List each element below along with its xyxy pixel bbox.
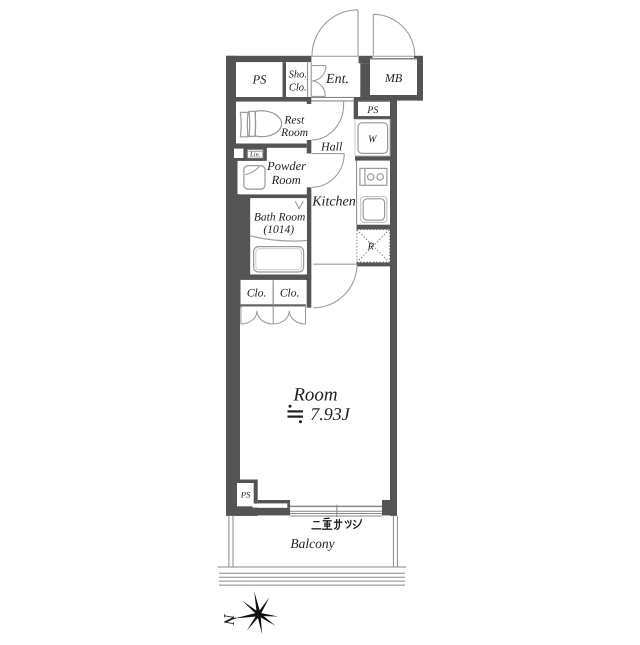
svg-text:N: N <box>220 613 236 626</box>
svg-text:Room: Room <box>292 385 337 406</box>
svg-text:Ent.: Ent. <box>325 72 349 87</box>
svg-text:(1014): (1014) <box>263 224 294 236</box>
svg-text:PS: PS <box>252 72 268 86</box>
svg-text:Clo.: Clo. <box>289 82 307 93</box>
svg-text:Room: Room <box>280 127 308 139</box>
svg-text:MB: MB <box>384 71 403 85</box>
svg-text:PS: PS <box>366 105 378 116</box>
svg-text:Rest: Rest <box>283 114 305 126</box>
svg-text:Hall: Hall <box>320 140 343 154</box>
svg-text:Kitchen: Kitchen <box>311 195 356 210</box>
svg-text:Clo.: Clo. <box>247 287 267 299</box>
svg-text:Bath Room: Bath Room <box>254 211 305 223</box>
svg-text:Powder: Powder <box>266 159 306 173</box>
svg-text:7.93J: 7.93J <box>310 404 351 424</box>
svg-text:Sho.: Sho. <box>289 69 307 80</box>
svg-text:Balcony: Balcony <box>290 536 334 551</box>
svg-text:Room: Room <box>271 173 301 187</box>
svg-text:Clo.: Clo. <box>280 287 300 299</box>
svg-text:R: R <box>367 242 375 253</box>
svg-text:PS: PS <box>240 490 251 500</box>
svg-text:Lin.: Lin. <box>249 151 261 158</box>
